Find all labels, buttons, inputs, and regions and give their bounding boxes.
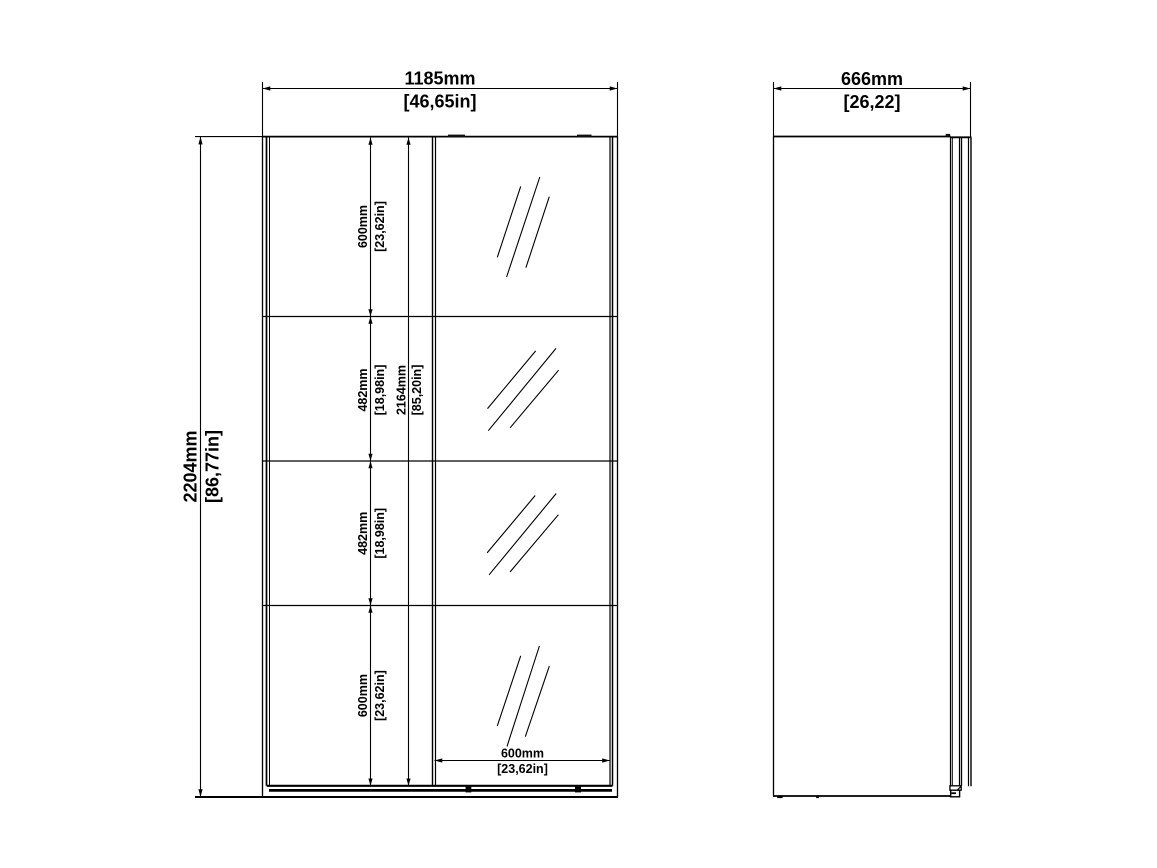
- svg-text:[18,98in]: [18,98in]: [373, 365, 387, 416]
- svg-text:600mm: 600mm: [501, 747, 544, 761]
- svg-text:2164mm: 2164mm: [394, 365, 408, 415]
- svg-text:[23,62in]: [23,62in]: [497, 762, 548, 776]
- svg-text:[18,98in]: [18,98in]: [373, 508, 387, 559]
- svg-text:[85,20in]: [85,20in]: [410, 365, 424, 416]
- svg-text:482mm: 482mm: [356, 512, 370, 555]
- svg-text:2204mm: 2204mm: [181, 430, 201, 502]
- svg-text:1185mm: 1185mm: [404, 69, 475, 89]
- svg-text:[23,62in]: [23,62in]: [373, 201, 387, 252]
- svg-text:[26,22]: [26,22]: [843, 92, 900, 112]
- svg-text:[23,62in]: [23,62in]: [373, 670, 387, 721]
- svg-text:666mm: 666mm: [841, 69, 903, 89]
- svg-text:[46,65in]: [46,65in]: [403, 92, 476, 112]
- svg-text:482mm: 482mm: [356, 368, 370, 411]
- svg-text:[86,77in]: [86,77in]: [203, 430, 223, 503]
- svg-text:600mm: 600mm: [356, 205, 370, 248]
- svg-text:600mm: 600mm: [356, 674, 370, 717]
